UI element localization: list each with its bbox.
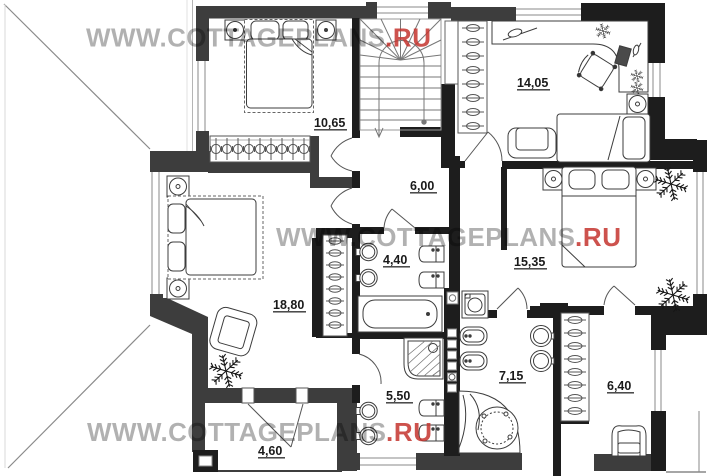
svg-text:10,65: 10,65 [314,116,345,130]
svg-text:7,15: 7,15 [499,369,523,383]
svg-text:4,40: 4,40 [383,253,407,267]
svg-text:WWW.COTTAGEPLANS: WWW.COTTAGEPLANS [87,417,386,447]
svg-text:.RU: .RU [385,23,431,53]
svg-text:.RU: .RU [386,417,432,447]
svg-text:.RU: .RU [575,222,621,252]
svg-text:WWW.COTTAGEPLANS: WWW.COTTAGEPLANS [86,23,385,53]
svg-text:6,00: 6,00 [410,179,434,193]
svg-text:14,05: 14,05 [517,76,548,90]
svg-text:WWW.COTTAGEPLANS: WWW.COTTAGEPLANS [276,222,575,252]
svg-text:18,80: 18,80 [273,298,304,312]
svg-text:6,40: 6,40 [607,379,631,393]
svg-text:15,35: 15,35 [514,255,545,269]
svg-text:5,50: 5,50 [386,389,410,403]
